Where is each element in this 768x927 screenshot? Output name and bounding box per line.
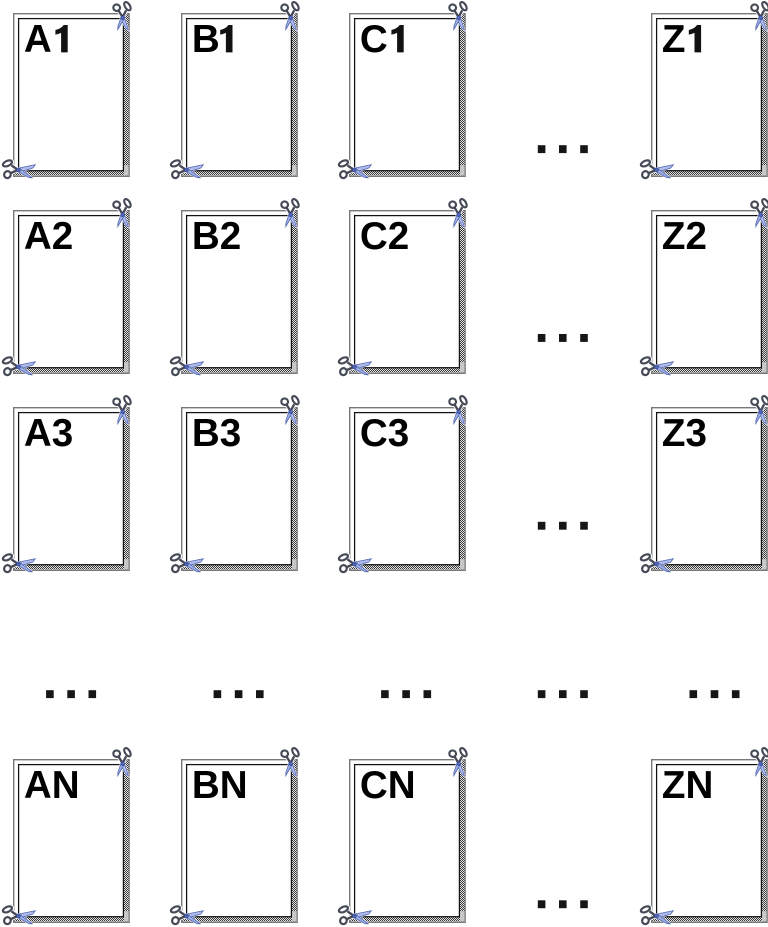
svg-text:AN: AN [24, 764, 80, 807]
svg-text:BN: BN [192, 764, 248, 807]
svg-text:ZN: ZN [662, 764, 713, 807]
svg-text:Z3: Z3 [662, 412, 707, 455]
svg-text:C: C [360, 18, 388, 61]
svg-text:A2: A2 [24, 215, 73, 258]
svg-text:Z2: Z2 [662, 215, 707, 258]
svg-text:B3: B3 [192, 412, 241, 455]
svg-text:A: A [24, 18, 52, 61]
svg-text:B: B [192, 18, 220, 61]
svg-text:Z: Z [662, 18, 686, 61]
svg-text:B2: B2 [192, 215, 241, 258]
svg-text:C3: C3 [360, 412, 409, 455]
svg-text:C2: C2 [360, 215, 409, 258]
svg-text:A3: A3 [24, 412, 73, 455]
svg-text:CN: CN [360, 764, 416, 807]
